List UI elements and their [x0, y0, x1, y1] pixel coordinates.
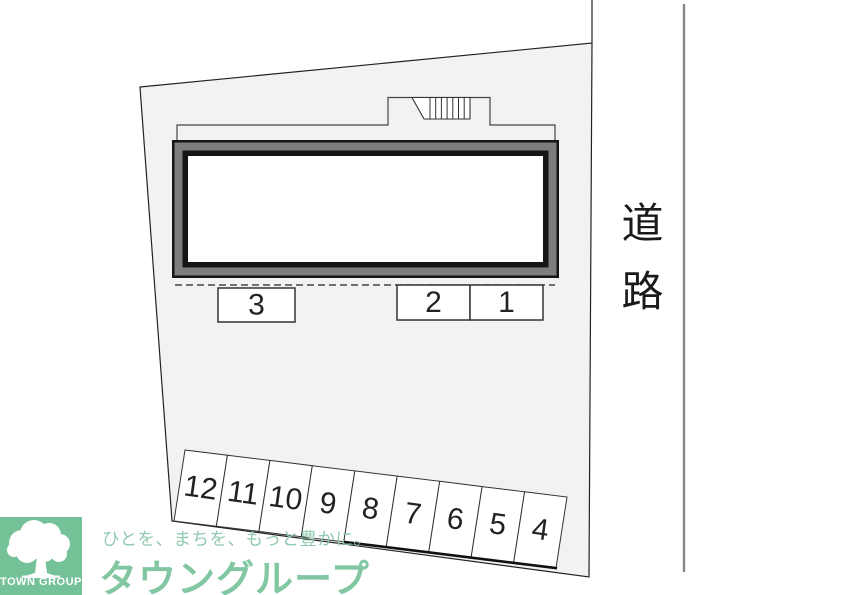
parking-stall-11-label: 11: [225, 475, 260, 512]
parking-stall-1-label: 1: [498, 286, 515, 319]
building: [172, 140, 559, 278]
logo-badge: TOWN GROUP: [0, 517, 82, 595]
parking-stall-10-label: 10: [267, 480, 305, 517]
building-interior: [188, 156, 543, 262]
parking-stall-2-label: 2: [425, 286, 442, 319]
logo-badge-text: TOWN GROUP: [0, 576, 82, 588]
road-label: 道路: [618, 201, 660, 337]
site-plan-drawing: 3 2 1 12 11 10 9 8 7 6 5 4: [0, 0, 842, 595]
site-plan-page: 3 2 1 12 11 10 9 8 7 6 5 4: [0, 0, 842, 595]
parking-stall-3-label: 3: [248, 289, 265, 322]
tree-icon: [0, 517, 82, 579]
logo-company-name: タウングループ: [99, 548, 370, 595]
parking-stall-12-label: 12: [182, 469, 220, 506]
